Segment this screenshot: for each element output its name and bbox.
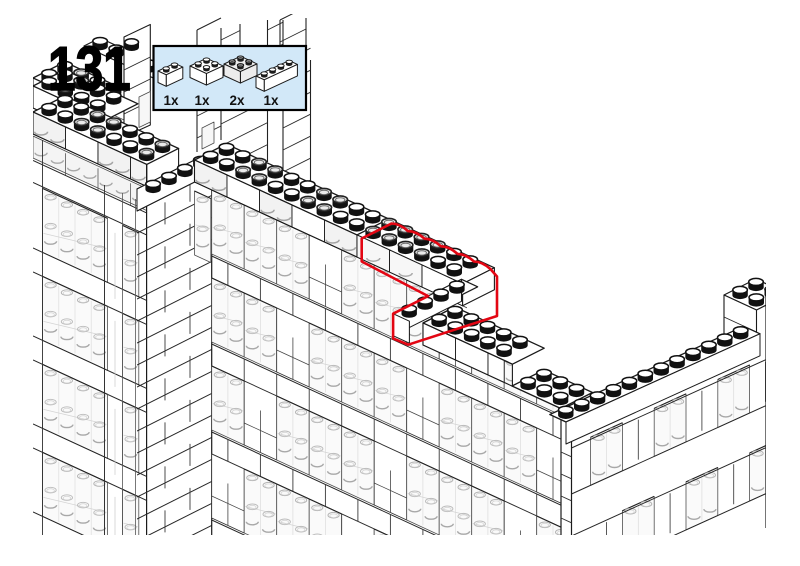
svg-text:1x: 1x bbox=[163, 93, 179, 108]
svg-text:131: 131 bbox=[48, 34, 131, 104]
svg-text:1x: 1x bbox=[194, 93, 210, 108]
svg-text:1x: 1x bbox=[263, 93, 279, 108]
svg-text:2x: 2x bbox=[229, 93, 245, 108]
